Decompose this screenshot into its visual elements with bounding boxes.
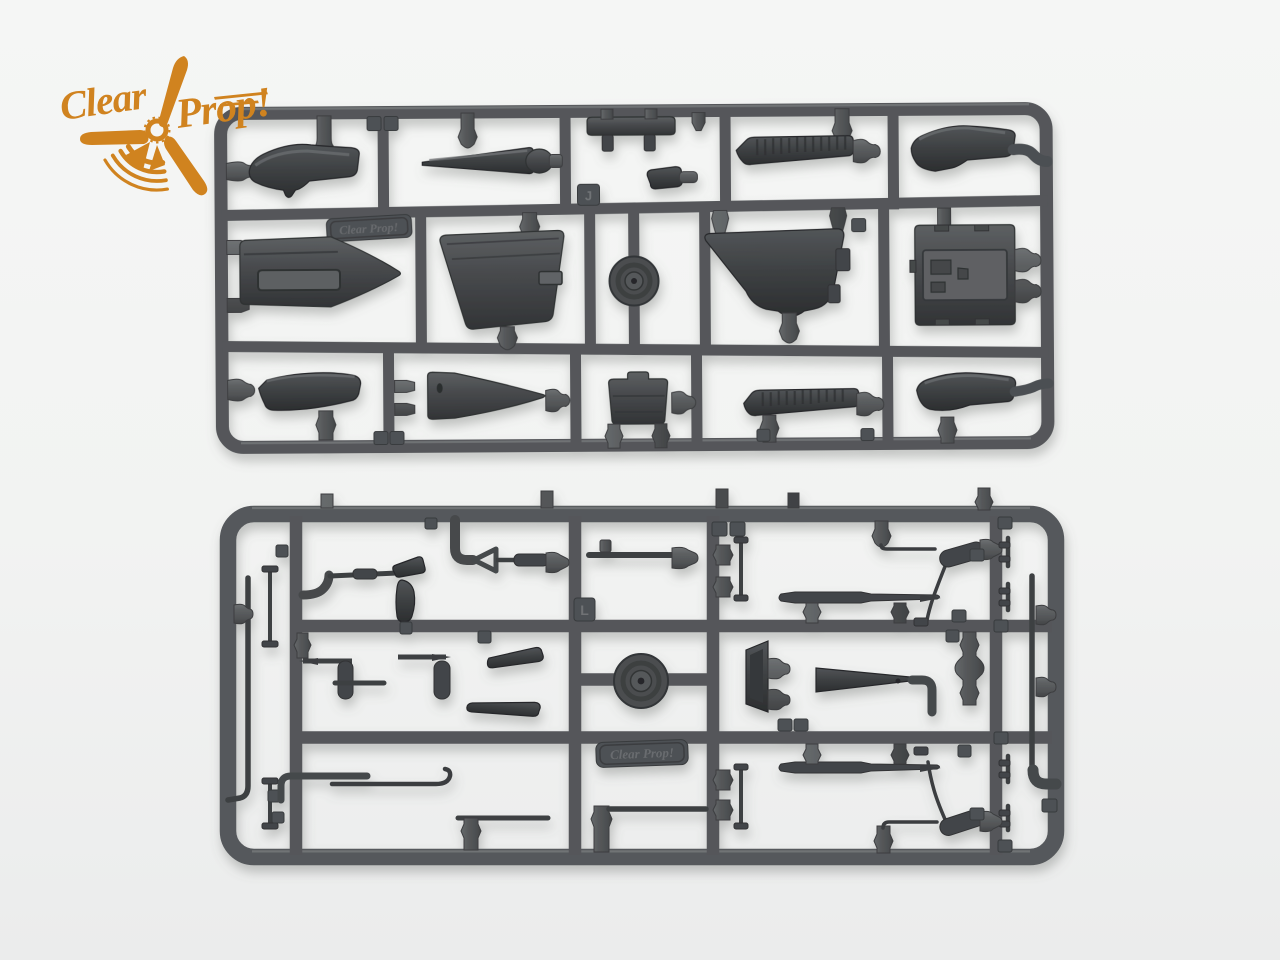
svg-text:Clear Prop!: Clear Prop!: [610, 745, 674, 762]
svg-text:J: J: [585, 188, 592, 203]
svg-text:L: L: [580, 602, 589, 618]
